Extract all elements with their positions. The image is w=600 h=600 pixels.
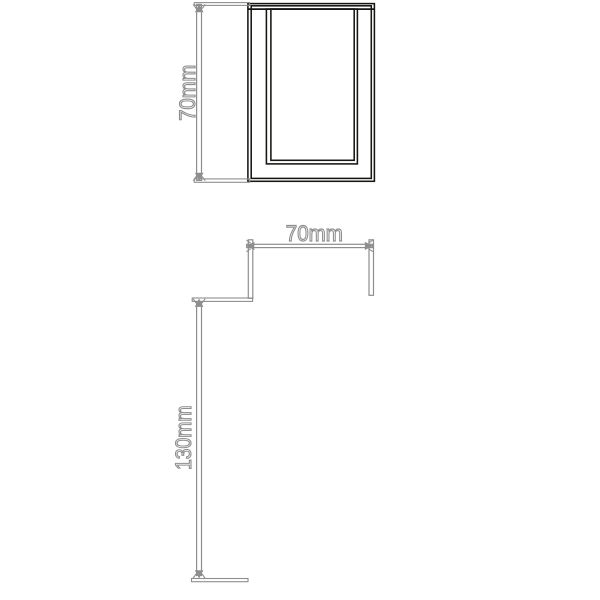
svg-text:70mm: 70mm xyxy=(286,221,343,246)
svg-text:130mm: 130mm xyxy=(171,406,196,471)
svg-text:70mm: 70mm xyxy=(175,65,200,121)
